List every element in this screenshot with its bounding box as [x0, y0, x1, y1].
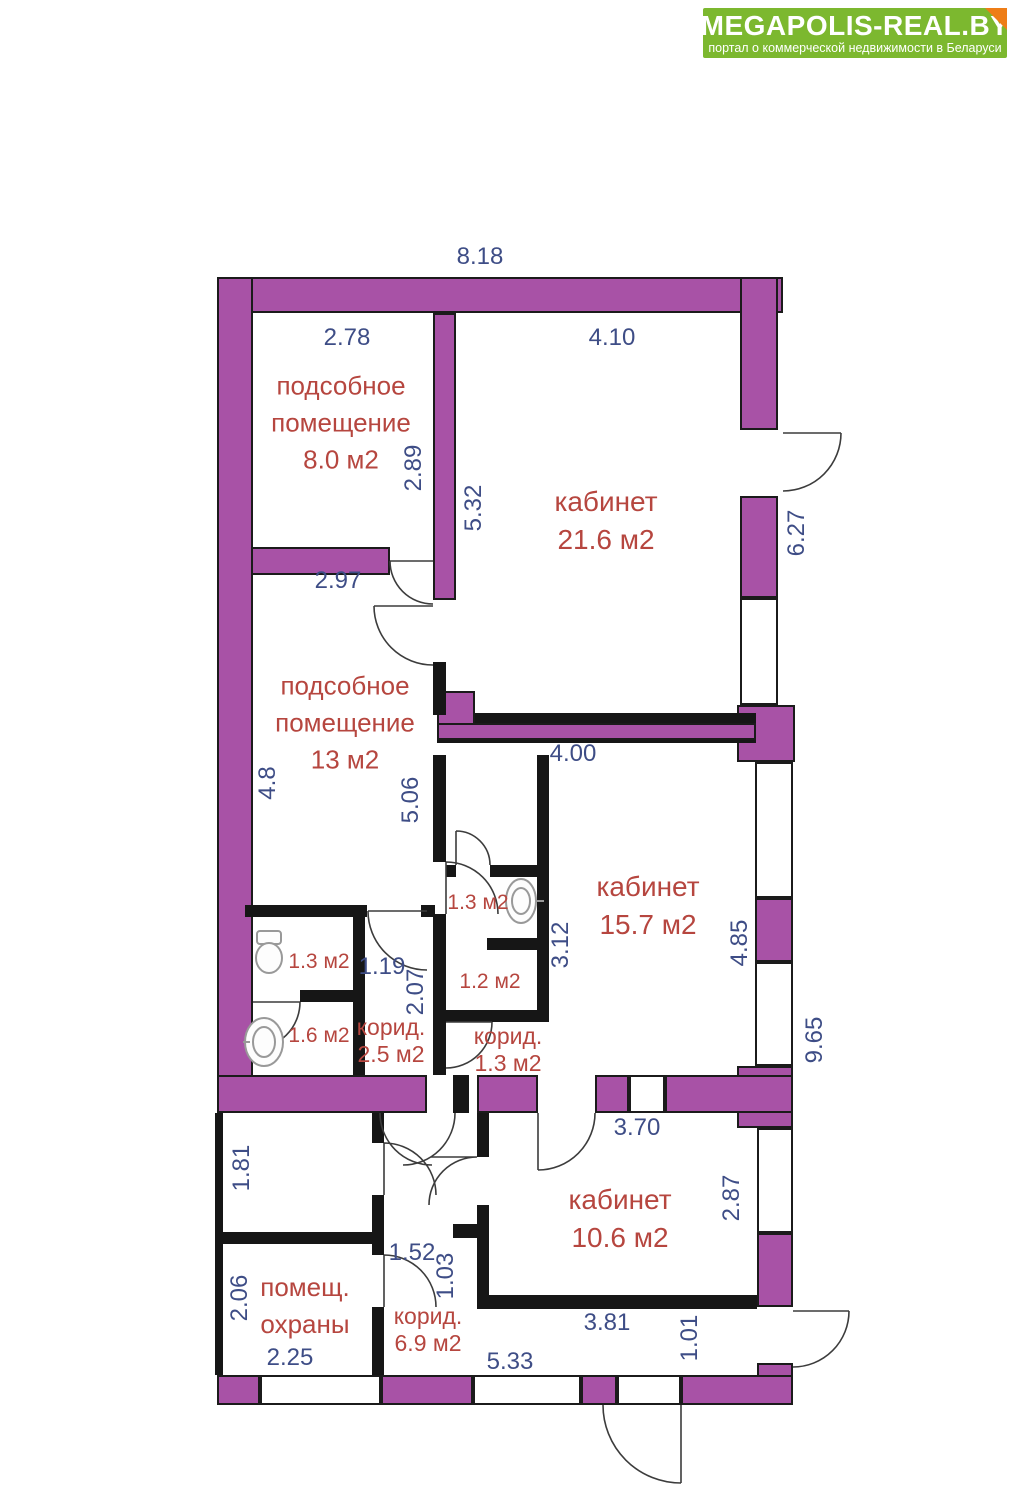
brand-title: MEGAPOLIS-REAL.BY — [701, 11, 1010, 41]
dim-2-25: 2.25 — [267, 1344, 314, 1372]
dim-1-81: 1.81 — [228, 1145, 256, 1192]
room-label-san-12: 1.2 м2 — [459, 970, 520, 994]
window-bottom-1 — [260, 1375, 381, 1405]
room-name: кабинет — [558, 868, 738, 906]
wall-bottom-3 — [581, 1375, 617, 1405]
wall-right-1 — [740, 277, 778, 430]
room-name: подсобное помещение — [235, 668, 455, 742]
wall-security-divider — [215, 1232, 372, 1244]
window-right-157a — [755, 762, 793, 898]
wall-sanblock-bottom — [446, 1010, 549, 1022]
dim-3-12: 3.12 — [547, 922, 575, 969]
dim-5-32: 5.32 — [460, 485, 488, 532]
dim-1-19: 1.19 — [359, 953, 406, 981]
dim-4-85: 4.85 — [726, 920, 754, 967]
wall-security-right-a — [372, 1113, 384, 1143]
wall-corridor-band-1 — [217, 1075, 427, 1113]
room-label-utility-13: подсобное помещение 13 м2 — [235, 668, 455, 779]
wall-bottom-2 — [381, 1375, 473, 1405]
room-label-san-13a: 1.3 м2 — [447, 891, 508, 915]
window-right-157b — [755, 962, 793, 1066]
dim-4-10: 4.10 — [589, 324, 636, 352]
wall-bottom-1 — [217, 1375, 260, 1405]
wall-sanblock-top-a — [446, 865, 456, 877]
room-area: 21.6 м2 — [516, 521, 696, 559]
wall-157-left — [537, 755, 549, 1022]
logo[interactable]: MEGAPOLIS-REAL.BY портал о коммерческой … — [703, 8, 1007, 58]
door-arc — [429, 1157, 477, 1205]
room-label-corridor-69: корид. 6.9 м2 — [373, 1303, 483, 1357]
wall-toilet-divider — [300, 990, 353, 1002]
door-arc — [783, 433, 841, 491]
room-area: 6.9 м2 — [373, 1330, 483, 1357]
door-arc — [374, 606, 433, 665]
dim-3-70: 3.70 — [614, 1114, 661, 1142]
dim-2-89: 2.89 — [400, 445, 428, 492]
wall-corridor-band-3 — [665, 1075, 793, 1113]
dim-3-81: 3.81 — [584, 1309, 631, 1337]
wall-security-left — [215, 1113, 223, 1375]
wall-top — [217, 277, 783, 313]
door-arc — [456, 831, 490, 865]
room-area: 1.6 м2 — [288, 1024, 349, 1048]
door-arc — [538, 1113, 595, 1170]
window-bottom-3 — [617, 1375, 681, 1405]
dim-5-06: 5.06 — [397, 777, 425, 824]
wall-106-bottom — [477, 1295, 757, 1309]
window-bottom-2 — [473, 1375, 581, 1405]
door-arc — [380, 1113, 432, 1165]
dim-5-33: 5.33 — [487, 1348, 534, 1376]
toilet-icon — [256, 931, 282, 973]
dim-2-97: 2.97 — [315, 567, 362, 595]
room-name: подсобное помещение — [231, 368, 451, 442]
room-label-office-106: кабинет 10.6 м2 — [530, 1181, 710, 1257]
floorplan: MEGAPOLIS-REAL.BY портал о коммерческой … — [0, 0, 1017, 1500]
dim-4-8: 4.8 — [254, 766, 282, 799]
room-name: корид. — [373, 1303, 483, 1330]
room-area: 1.3 м2 — [288, 950, 349, 974]
window-right-upper — [740, 598, 778, 705]
wall-106-left-b — [477, 1205, 489, 1295]
room-label-guard: помещ. охраны — [245, 1269, 365, 1343]
room-label-corridor-25: корид. 2.5 м2 — [336, 1014, 446, 1068]
wall-106-left-a — [477, 1113, 489, 1157]
wall-corridor-band-2b — [595, 1075, 629, 1113]
room-label-office-157: кабинет 15.7 м2 — [558, 868, 738, 944]
room-name: кабинет — [530, 1181, 710, 1219]
room-area: 15.7 м2 — [558, 906, 738, 944]
dim-1-03: 1.03 — [432, 1253, 460, 1300]
window-corridor-band — [629, 1075, 665, 1113]
door-arc — [384, 1143, 436, 1195]
brand-subtitle: портал о коммерческой недвижимости в Бел… — [708, 41, 1001, 55]
window-right-106 — [757, 1128, 793, 1233]
room-name: корид. — [453, 1023, 563, 1050]
wall-mid-band — [437, 723, 756, 740]
dim-1-52: 1.52 — [389, 1239, 436, 1267]
dim-4-00: 4.00 — [550, 740, 597, 768]
dim-2-07: 2.07 — [402, 969, 430, 1016]
dim-6-27: 6.27 — [783, 510, 811, 557]
dim-2-78: 2.78 — [324, 324, 371, 352]
dim-2-06: 2.06 — [226, 1275, 254, 1322]
room-name: помещ. охраны — [245, 1269, 365, 1343]
wall-right-4 — [757, 1233, 793, 1307]
room-label-corridor-13: корид. 1.3 м2 — [453, 1023, 563, 1077]
dim-9-65: 9.65 — [801, 1017, 829, 1064]
dim-1-01: 1.01 — [676, 1315, 704, 1362]
wall-security-right-b — [372, 1195, 384, 1255]
room-name: кабинет — [516, 483, 696, 521]
wall-right-3 — [755, 898, 793, 962]
door-arc — [390, 561, 433, 604]
wall-sanblock-top-b — [490, 865, 537, 877]
door-arc — [403, 1113, 455, 1165]
dim-2-87: 2.87 — [718, 1175, 746, 1222]
wall-corridor-band-2a — [477, 1075, 538, 1113]
room-name: корид. — [336, 1014, 446, 1041]
wall-sanblock-divider — [487, 938, 537, 950]
doors-and-fixtures-layer — [0, 0, 1017, 1500]
door-gap — [367, 905, 421, 919]
room-label-san-16: 1.6 м2 — [288, 1024, 349, 1048]
door-arc — [603, 1405, 681, 1483]
room-area: 1.3 м2 — [447, 891, 508, 915]
wall-corridor-post — [453, 1075, 469, 1113]
room-area: 1.2 м2 — [459, 970, 520, 994]
wall-106-stub — [453, 1224, 489, 1238]
room-area: 2.5 м2 — [336, 1041, 446, 1068]
room-label-office-216: кабинет 21.6 м2 — [516, 483, 696, 559]
folded-corner-icon — [985, 8, 1007, 30]
room-label-san-13b: 1.3 м2 — [288, 950, 349, 974]
wall-right-2 — [740, 496, 778, 598]
room-area: 10.6 м2 — [530, 1219, 710, 1257]
dim-8-18: 8.18 — [457, 243, 504, 271]
door-arc — [793, 1311, 849, 1367]
wall-bottom-4 — [681, 1375, 793, 1405]
room-area: 1.3 м2 — [453, 1050, 563, 1077]
